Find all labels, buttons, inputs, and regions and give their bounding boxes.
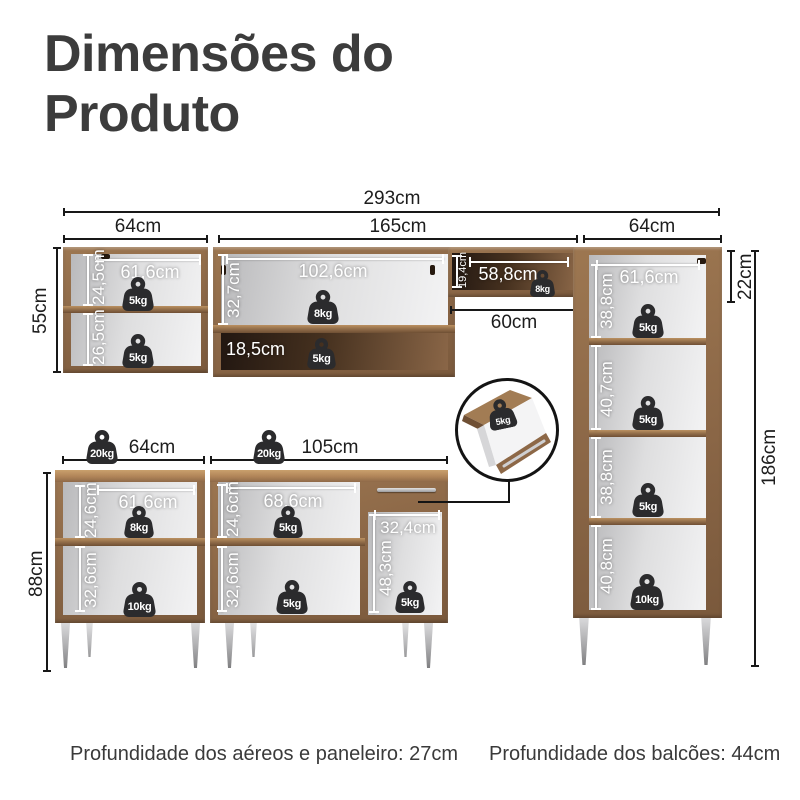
base-cabinet-1-top	[55, 470, 205, 482]
dim-line-base2-inner-width	[226, 487, 356, 489]
dim-upper-left-height: 55cm	[30, 280, 52, 342]
weight-icon: 5kg	[120, 277, 156, 311]
weight-icon: 5kg	[274, 580, 310, 614]
cabinet-leg	[400, 623, 411, 657]
tall-cabinet-shelf	[589, 430, 706, 437]
cabinet-leg	[248, 623, 259, 657]
weight-icon: 5kg	[630, 304, 666, 338]
weight-icon: 8kg	[528, 270, 557, 297]
dim-line-upper-left-height	[56, 247, 58, 373]
dim-line-base2-compartment-width	[374, 514, 440, 516]
dim-line-base2-compartment-height	[373, 514, 375, 613]
dim-line-upper-middle-inner-width	[226, 258, 444, 260]
base-cabinet-2-top	[210, 470, 448, 482]
dim-base-height: 88cm	[26, 543, 48, 605]
weight-icon: 20kg	[84, 430, 120, 464]
cabinet-leg	[576, 618, 592, 665]
dim-upper-middle-width: 165cm	[353, 216, 443, 238]
weight-icon: 5kg	[630, 483, 666, 517]
dim-upper-left-bottom-section: 26,5cm	[89, 316, 109, 365]
dim-stove-gap: 60cm	[455, 312, 573, 334]
dim-line-tall-top-section	[730, 250, 732, 303]
product-dimensions-infographic: { "title": "Dimensões do Produto", "foot…	[0, 0, 800, 800]
dim-line-upper-middle-width	[218, 238, 578, 240]
dim-mini-shelf-height: 19,4cm	[457, 256, 469, 288]
footer-depth-balcoes: Profundidade dos balcões: 44cm	[489, 743, 780, 766]
weight-icon: 10kg	[627, 574, 667, 610]
dim-upper-middle-inner-width: 102,6cm	[288, 261, 378, 282]
dim-base2-bottom-section: 32,6cm	[223, 551, 243, 609]
weight-icon: 8kg	[122, 506, 156, 538]
cabinet-leg	[698, 618, 714, 665]
callout-line	[418, 501, 510, 503]
base-cabinet-1-shelf	[55, 538, 205, 546]
dim-upper-right-width: 64cm	[607, 216, 697, 238]
hinge-icon	[430, 265, 435, 275]
open-drawer-illustration	[458, 381, 556, 479]
dim-base1-width: 64cm	[107, 437, 197, 459]
dim-line-total-width	[63, 211, 720, 213]
weight-icon: 5kg	[630, 396, 666, 430]
dim-line-base2-width	[210, 459, 448, 461]
dim-base1-top-section: 24,6cm	[81, 488, 101, 538]
cabinet-leg	[222, 623, 237, 668]
dim-tall-section3: 38,8cm	[597, 444, 617, 511]
dim-upper-left-width: 64cm	[93, 216, 183, 238]
weight-icon: 10kg	[120, 582, 159, 617]
dim-line-base1-inner-width	[97, 489, 195, 491]
dim-line-upper-right-width	[583, 238, 722, 240]
drawer-handle	[377, 488, 436, 492]
dim-line-upper-left-width	[63, 238, 208, 240]
weight-icon: 8kg	[305, 290, 341, 324]
weight-icon: 5kg	[305, 338, 338, 369]
dim-tall-section1: 38,8cm	[597, 269, 617, 334]
dim-line-tall-height	[754, 250, 756, 667]
dim-upper-left-top-section: 24,5cm	[89, 257, 109, 305]
drawer-detail-circle	[455, 378, 559, 482]
weight-icon: 20kg	[251, 430, 287, 464]
dim-tall-section4: 40,8cm	[597, 533, 617, 599]
dim-tall-height: 186cm	[759, 425, 781, 489]
dim-total-width: 293cm	[332, 188, 452, 210]
page-title: Dimensões do Produto	[44, 24, 474, 145]
dim-base1-bottom-section: 32,6cm	[81, 551, 101, 609]
dim-line-upper-left-inner-width	[97, 259, 201, 261]
dim-base2-compartment-width: 32,4cm	[374, 518, 442, 538]
weight-icon: 5kg	[393, 581, 427, 613]
weight-icon: 5kg	[271, 506, 305, 538]
base-cabinet-2-shelf	[210, 538, 365, 546]
upper-middle-cabinet-shelf	[213, 325, 455, 333]
dim-line-tall-inner-width	[596, 264, 700, 266]
dim-base2-top-section: 24,6cm	[223, 487, 243, 537]
dim-upper-middle-section: 32,7cm	[224, 258, 244, 322]
dim-line-mini-shelf-width	[469, 261, 569, 263]
weight-icon: 5kg	[120, 334, 156, 368]
tall-cabinet-shelf	[589, 338, 706, 345]
tall-cabinet-shelf	[589, 518, 706, 525]
cabinet-leg	[421, 623, 436, 668]
dim-base2-width: 105cm	[285, 437, 375, 459]
cabinet-leg	[84, 623, 95, 657]
footer-depth-aereos: Profundidade dos aéreos e paneleiro: 27c…	[70, 743, 458, 766]
cabinet-leg	[188, 623, 203, 668]
cabinet-leg	[58, 623, 73, 668]
dim-upper-middle-shelf: 18,5cm	[226, 339, 286, 360]
dim-line-stove-gap	[450, 309, 578, 311]
dim-tall-section2: 40,7cm	[597, 355, 617, 423]
dim-tall-inner-width: 61,6cm	[607, 267, 691, 288]
